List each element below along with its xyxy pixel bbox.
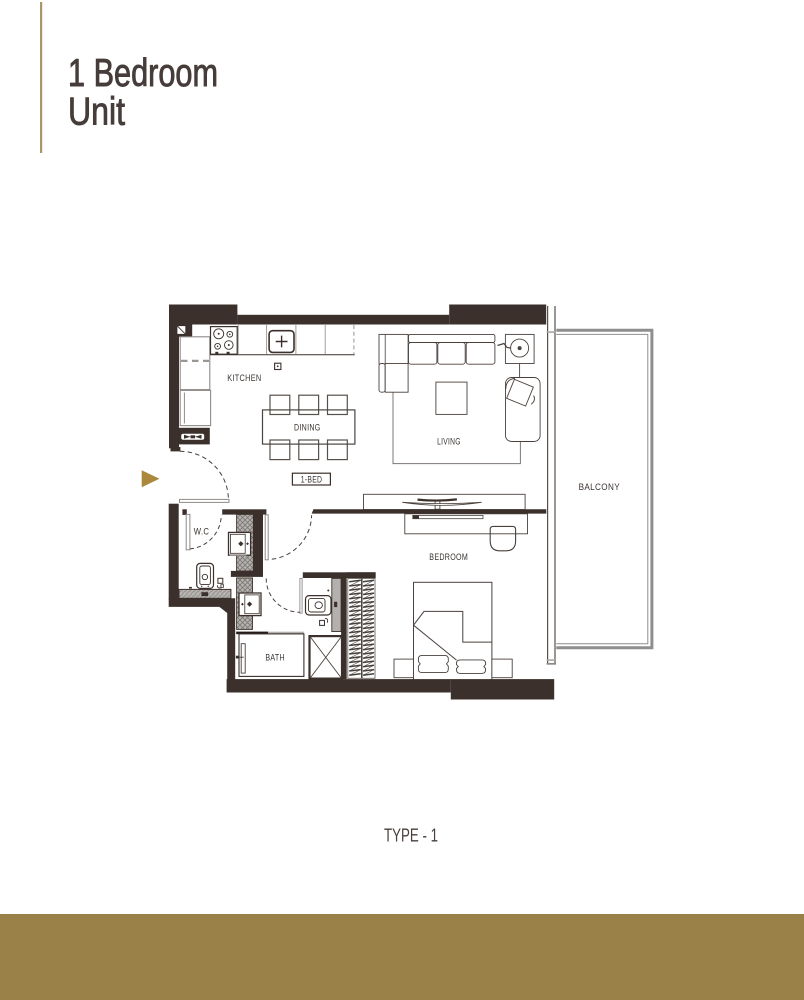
- svg-text:TYPE - 1: TYPE - 1: [384, 825, 438, 846]
- svg-text:BEDROOM: BEDROOM: [429, 552, 468, 563]
- svg-text:BALCONY: BALCONY: [579, 482, 621, 493]
- svg-text:BATH: BATH: [265, 652, 285, 663]
- svg-text:W.C: W.C: [194, 527, 210, 538]
- svg-text:Unit: Unit: [68, 91, 125, 134]
- svg-text:1-BED: 1-BED: [301, 475, 323, 486]
- svg-text:1 Bedroom: 1 Bedroom: [68, 52, 218, 95]
- svg-text:KITCHEN: KITCHEN: [227, 373, 261, 384]
- svg-text:LIVING: LIVING: [437, 436, 461, 447]
- svg-text:DINING: DINING: [294, 423, 321, 434]
